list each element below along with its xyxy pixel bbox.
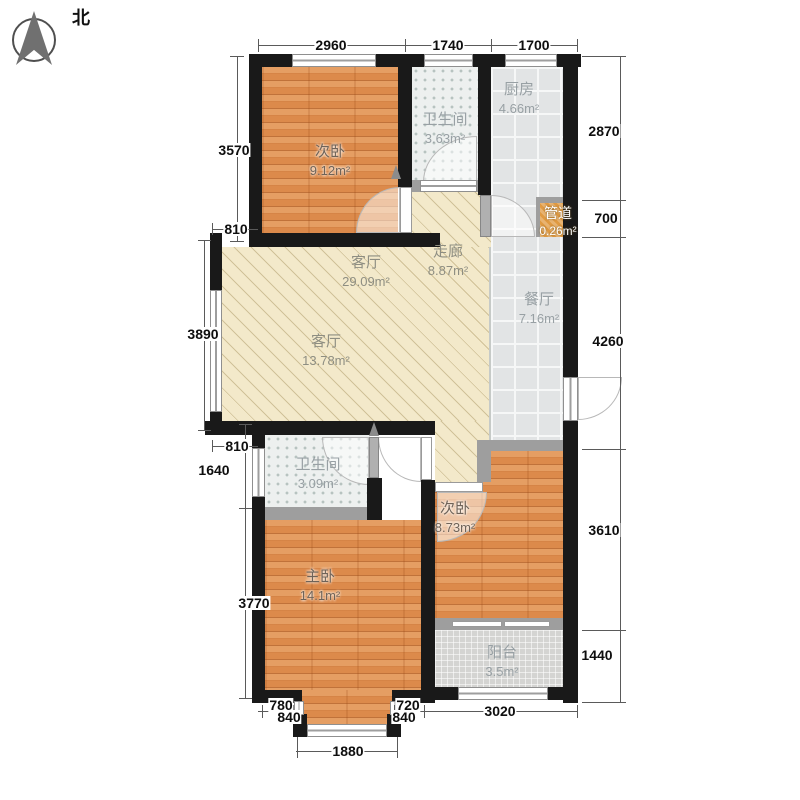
floor-kitchen-dining	[491, 67, 563, 440]
room-area: 8.87m²	[428, 263, 468, 278]
dim-right-1440: 1440	[580, 648, 613, 662]
wall-balcony-bottom-left	[421, 687, 458, 700]
wall-bedroom-top-right	[398, 54, 412, 187]
window-bedroom-top	[292, 54, 376, 67]
tick	[582, 630, 626, 631]
door-arc-master	[378, 437, 421, 482]
label-master: 主卧 14.1m²	[300, 565, 340, 603]
room-name: 餐厅	[519, 288, 559, 309]
tick	[198, 430, 211, 431]
tick	[198, 240, 211, 241]
wall-balcony-bottom-right	[548, 687, 578, 700]
room-area: 3.5m²	[485, 664, 518, 679]
door-leaf-master	[421, 437, 432, 480]
wall-corridor-right	[477, 440, 491, 482]
tick	[239, 698, 252, 699]
tick	[424, 705, 425, 718]
dim-top-1740: 1740	[431, 38, 464, 52]
tick	[239, 508, 252, 509]
tick	[582, 56, 626, 57]
room-name: 次卧	[310, 140, 350, 161]
label-living-upper: 客厅 29.09m²	[342, 251, 390, 289]
label-bath-top: 卫生间 3.63m²	[422, 108, 467, 146]
window-living-left	[210, 290, 222, 412]
room-area: 7.16m²	[519, 311, 559, 326]
door-leaf-bedroom-right	[435, 482, 483, 492]
window-bay-bottom	[307, 724, 387, 737]
window-bath-top	[424, 54, 473, 67]
room-area: 3.09m²	[295, 476, 340, 491]
dim-right-2870: 2870	[587, 124, 620, 138]
window-bath-lower-left	[252, 448, 265, 497]
room-area: 3.63m²	[422, 131, 467, 146]
tick	[491, 39, 492, 52]
window-balcony	[458, 687, 548, 700]
label-corridor: 走廊 8.87m²	[428, 240, 468, 278]
label-kitchen: 厨房 4.66m²	[499, 78, 539, 116]
label-bedroom-right: 次卧 8.73m²	[435, 497, 475, 535]
floor-bay-window	[300, 690, 394, 724]
balcony-slide-door-right	[504, 621, 550, 627]
dimline-right	[620, 56, 621, 703]
tick	[577, 705, 578, 718]
wall-bedroom-right-top	[491, 440, 563, 451]
dim-bottom-1880: 1880	[331, 744, 364, 758]
dim-left-810a: 810	[223, 222, 248, 236]
living-dining-divider	[489, 247, 491, 440]
dim-top-1700: 1700	[517, 38, 550, 52]
dim-left-1640: 1640	[197, 463, 230, 477]
label-bedroom-top: 次卧 9.12m²	[310, 140, 350, 178]
label-dining: 餐厅 7.16m²	[519, 288, 559, 326]
tick	[262, 705, 263, 718]
door-leaf-kitchen	[480, 195, 491, 237]
label-duct: 管道 0.26m²	[539, 203, 576, 238]
room-name: 厨房	[499, 78, 539, 99]
room-name: 走廊	[428, 240, 468, 261]
tick	[258, 39, 259, 52]
dim-left-3570: 3570	[217, 143, 250, 157]
tick	[212, 223, 213, 235]
wall-bath-lower-right	[367, 478, 382, 520]
dim-left-810b: 810	[224, 439, 249, 453]
window-kitchen	[505, 54, 557, 67]
tick	[297, 737, 298, 751]
room-name: 次卧	[435, 497, 475, 518]
tick	[582, 237, 626, 238]
door-arc-entry	[578, 377, 622, 420]
dim-bottom-3020: 3020	[483, 704, 516, 718]
room-name: 卫生间	[422, 108, 467, 129]
room-name: 管道	[539, 203, 576, 223]
room-area: 13.78m²	[302, 353, 350, 368]
tick	[212, 440, 213, 452]
room-name: 客厅	[342, 251, 390, 272]
wall-left-bedroom-top	[249, 54, 262, 247]
room-area: 0.26m²	[539, 224, 576, 238]
tick	[582, 449, 626, 450]
dim-left-3890: 3890	[186, 327, 219, 341]
tick	[230, 241, 244, 242]
room-area: 8.73m²	[435, 520, 475, 535]
dim-right-3610: 3610	[587, 523, 620, 537]
tick	[582, 200, 626, 201]
label-balcony: 阳台 3.5m²	[485, 641, 518, 679]
wall-master-right	[421, 480, 435, 701]
balcony-slide-door-left	[452, 621, 502, 627]
label-living-lower: 客厅 13.78m²	[302, 330, 350, 368]
floor-master	[265, 520, 421, 690]
tick	[397, 737, 398, 751]
tick	[239, 424, 252, 425]
wall-bath-lower-bottom	[252, 507, 382, 520]
label-bath-lower: 卫生间 3.09m²	[295, 453, 340, 491]
tick	[577, 39, 578, 52]
wall-kitchen-left	[478, 54, 491, 195]
room-name: 阳台	[485, 641, 518, 662]
room-area: 9.12m²	[310, 163, 350, 178]
dim-right-4260: 4260	[591, 334, 624, 348]
dim-top-2960: 2960	[314, 38, 347, 52]
dim-bottom-840a: 840	[276, 710, 301, 724]
tick	[230, 56, 244, 57]
door-leaf-bath-top	[420, 180, 477, 192]
dimline-left-3	[245, 424, 246, 699]
door-leaf-bath-lower	[369, 437, 379, 478]
floor-plan: 次卧 9.12m² 卫生间 3.63m² 厨房 4.66m² 管道 0.26m²…	[0, 0, 800, 800]
north-label: 北	[72, 4, 90, 30]
tick	[582, 702, 626, 703]
dim-bottom-840b: 840	[391, 710, 416, 724]
wall-bedroom-top-bottom	[249, 233, 440, 247]
room-name: 卫生间	[295, 453, 340, 474]
room-area: 4.66m²	[499, 101, 539, 116]
tick	[405, 39, 406, 52]
dim-left-3770: 3770	[237, 596, 270, 610]
door-leaf-entry	[563, 377, 578, 421]
room-area: 14.1m²	[300, 588, 340, 603]
room-area: 29.09m²	[342, 274, 390, 289]
dim-right-700: 700	[593, 211, 618, 225]
room-name: 主卧	[300, 565, 340, 586]
room-name: 客厅	[302, 330, 350, 351]
door-leaf-bedroom-top	[400, 187, 412, 233]
